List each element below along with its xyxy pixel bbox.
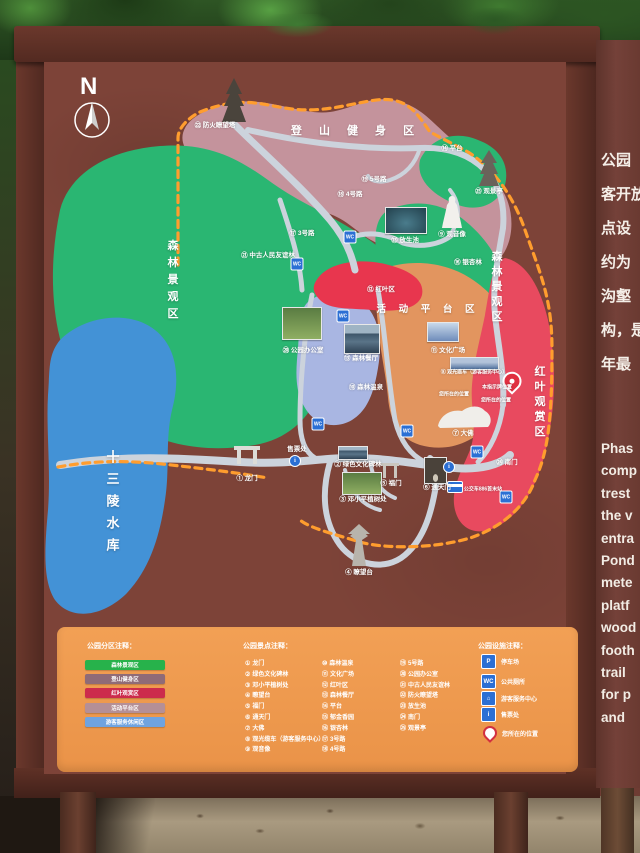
spot-label: 红叶区 — [330, 683, 348, 689]
map-label: ⑦ 大佛 — [452, 427, 473, 437]
spot-label: 银杏林 — [330, 726, 348, 732]
legend-spot-item: ⑯银杏林 — [322, 723, 348, 732]
legend-spots-title: 公园景点注释： — [243, 641, 292, 651]
spot-number: ⑲ — [400, 661, 406, 667]
zone-label: 登 山 健 身 区 — [291, 122, 421, 138]
facility-label: 售票处 — [501, 710, 519, 719]
legend-zone-bar-label: 游客服务休闲区 — [106, 718, 145, 726]
legend-zone-bar-label: 红叶观赏区 — [111, 689, 139, 697]
legend-spot-item: ⑩森林温泉 — [322, 658, 353, 667]
map-facility-icon: i — [289, 455, 301, 467]
map-label: ㉑ 中古人民友谊林 — [241, 249, 295, 259]
map-label: ⑭ 平台 — [441, 142, 462, 152]
legend-zones-title: 公园分区注释： — [87, 641, 136, 651]
legend-spot-item: ㉒防火瞭望塔 — [400, 690, 438, 699]
map-photo-thumb — [282, 307, 322, 340]
legend-spot-item: ⑳公园办公室 — [400, 669, 438, 678]
chinese-text-line: 年最 — [601, 348, 640, 382]
spot-number: ③ — [245, 683, 250, 689]
panel-leg — [601, 788, 634, 853]
zone-label: 森林景观区 — [488, 251, 504, 326]
spot-number: ① — [245, 661, 250, 667]
english-text-line: entra — [601, 528, 637, 550]
legend-panel: 公园分区注释： 森林景观区 登山健身区 红叶观赏区 活动平台区 游客服务休闲区 … — [57, 627, 578, 772]
spot-label: 5号路 — [408, 661, 423, 667]
spot-number: ⑤ — [245, 704, 250, 710]
spot-number: ⑧ — [245, 737, 250, 743]
spot-label: 绿色文化碑林 — [252, 672, 288, 678]
spot-label: 公园办公室 — [408, 672, 438, 678]
spot-number: ㉓ — [400, 704, 406, 710]
spot-number: ⑩ — [322, 661, 327, 667]
legend-zone-bar: 红叶观赏区 — [85, 688, 165, 698]
facility-icon: WC — [481, 674, 496, 689]
legend-spot-item: ⑰3号路 — [322, 734, 345, 743]
legend-spot-item: ④瞭望台 — [245, 690, 270, 699]
english-text-line: Pond — [601, 550, 637, 572]
spot-number: ㉔ — [400, 715, 406, 721]
legend-zone-bar-label: 森林景观区 — [111, 661, 139, 669]
map-label: ⑩ 森林温泉 — [349, 381, 383, 391]
map-label: ㉕ 观景亭 — [475, 185, 503, 195]
spot-label: 中古人民友谊林 — [408, 683, 450, 689]
map-label: ⑥ 通天门 — [423, 481, 451, 491]
legend-spot-item: ⑱4号路 — [322, 744, 345, 753]
map-label: ⑯ 银杏林 — [454, 256, 482, 266]
map-label: ⑳ 公园办公室 — [283, 344, 324, 354]
map-label: ③ 邓小平植树处 — [339, 493, 386, 503]
spot-label: 森林温泉 — [329, 661, 353, 667]
map-label: 您所在的位置 — [481, 397, 511, 404]
legend-spot-item: ㉔南门 — [400, 712, 420, 721]
facility-icon — [480, 723, 500, 743]
map-label: ⑪ 文化广场 — [431, 344, 465, 354]
spot-number: ㉑ — [400, 683, 406, 689]
map-label: ㉔ 南门 — [496, 456, 517, 466]
legend-zone-bar: 登山健身区 — [85, 674, 165, 684]
chinese-text-line: 客开放 — [601, 178, 640, 212]
sign-left-leg — [60, 792, 96, 853]
english-text-line: trail — [601, 662, 637, 684]
map-label: ⑫ 红叶区 — [367, 283, 395, 293]
facility-label: 游客服务中心 — [501, 694, 537, 703]
info-panel: 公园客开放点设约为沟壑构，是年最 Phascomptrestthe ventra… — [596, 40, 640, 788]
map-facility-icon: i — [443, 461, 455, 473]
legend-spot-item: ⑮郁金香园 — [322, 712, 354, 721]
legend-spot-item: ①龙门 — [245, 658, 264, 667]
map-photo-thumb — [427, 322, 459, 342]
map-label: ① 龙门 — [236, 472, 257, 482]
map-label: ⑲ 5号路 — [362, 173, 387, 183]
legend-spot-item: ③邓小平植树处 — [245, 680, 288, 689]
legend-spot-item: ⑭平台 — [322, 701, 342, 710]
map-photo-thumb — [342, 472, 382, 495]
spot-number: ⑯ — [322, 726, 328, 732]
chinese-text-line: 沟壑 — [601, 280, 640, 314]
spot-label: 平台 — [330, 704, 342, 710]
legend-spot-item: ⑤福门 — [245, 701, 264, 710]
legend-spot-item: ②绿色文化碑林 — [245, 669, 288, 678]
fortune-gate-structure — [381, 463, 399, 478]
legend-spot-item: ⑨观音像 — [245, 744, 270, 753]
spot-label: 森林餐厅 — [330, 693, 354, 699]
park-map-sign-photo: N WCWCWCWCWCWCWCii 登 山 健 身 区活 动 平 台 区森林景… — [0, 0, 640, 853]
map-photo-thumb — [344, 324, 380, 354]
legend-spot-item: ㉓放生池 — [400, 701, 426, 710]
english-text-line: for p — [601, 684, 637, 706]
english-text-line: wood — [601, 617, 637, 639]
legend-zone-bar: 游客服务休闲区 — [85, 717, 165, 727]
map-label: ⑬ 森林餐厅 — [344, 352, 378, 362]
map-label: 售票处 — [287, 443, 307, 453]
facility-icon: P — [481, 654, 496, 669]
spot-label: 通天门 — [252, 715, 270, 721]
spot-label: 瞭望台 — [252, 693, 270, 699]
map-label: ⑰ 3号路 — [290, 227, 315, 237]
legend-facility-item: 您所在的位置 — [481, 726, 538, 740]
facility-label: 公共厕所 — [501, 677, 525, 686]
legend-facility-item: P 停车场 — [481, 654, 519, 669]
legend-facility-item: ⌂ 游客服务中心 — [481, 691, 537, 706]
english-text-line: and — [601, 707, 637, 729]
english-text-line: trest — [601, 483, 637, 505]
zone-label: 十三陵水库 — [103, 450, 122, 560]
leaf-overhang — [250, 14, 345, 48]
spot-label: 龙门 — [252, 661, 264, 667]
facility-icon: i — [481, 707, 496, 722]
legend-spot-item: ㉕观景亭 — [400, 723, 426, 732]
map-facility-icon: WC — [344, 231, 357, 244]
spot-label: 观音像 — [252, 747, 270, 753]
sign-left-post — [16, 30, 46, 794]
map-facility-icon: WC — [337, 310, 350, 323]
map-label: ④ 瞭望台 — [345, 566, 373, 576]
spot-label: 文化广场 — [330, 672, 354, 678]
spot-label: 放生池 — [408, 704, 426, 710]
spot-number: ⑮ — [322, 715, 328, 721]
spot-number: ⑫ — [322, 683, 328, 689]
spot-number: ㉒ — [400, 693, 406, 699]
legend-facility-item: WC 公共厕所 — [481, 674, 525, 689]
spot-label: 南门 — [408, 715, 420, 721]
zone-label: 森林景观区 — [164, 240, 180, 325]
spot-label: 郁金香园 — [330, 715, 354, 721]
english-text-line: Phas — [601, 438, 637, 460]
legend-zone-bar-label: 活动平台区 — [111, 704, 139, 712]
legend-spot-item: ⑦大佛 — [245, 723, 264, 732]
compass-n-label: N — [80, 73, 97, 100]
map-label: ⑱ 4号路 — [338, 188, 363, 198]
spot-label: 邓小平植树处 — [252, 683, 288, 689]
legend-spot-item: ⑧观光缆车（游客服务中心） — [245, 734, 324, 743]
legend-spot-item: ⑬森林餐厅 — [322, 690, 354, 699]
map-label: ⑨ 观音像 — [438, 228, 466, 238]
map-label: 本指示牌位置 — [482, 384, 512, 391]
facility-icon: ⌂ — [481, 691, 496, 706]
map-facility-icon: WC — [312, 418, 325, 431]
english-text-line: footh — [601, 640, 637, 662]
legend-spot-item: ⑫红叶区 — [322, 680, 348, 689]
chinese-text-line: 公园 — [601, 144, 640, 178]
map-label: ⑧ 观光缆车（游客服务中心） — [441, 369, 507, 376]
legend-zone-bar-label: 登山健身区 — [111, 675, 139, 683]
spot-label: 福门 — [252, 704, 264, 710]
spot-number: ④ — [245, 693, 250, 699]
chinese-text-line: 点设 — [601, 212, 640, 246]
map-facility-icon: WC — [401, 425, 414, 438]
english-text-line: mete — [601, 572, 637, 594]
legend-spot-item: ⑥通天门 — [245, 712, 270, 721]
spot-label: 3号路 — [330, 737, 345, 743]
sign-right-leg — [494, 792, 528, 853]
info-panel-chinese-text: 公园客开放点设约为沟壑构，是年最 — [601, 144, 640, 382]
fire-watchtower-structure — [222, 78, 246, 122]
facility-label: 停车场 — [501, 657, 519, 666]
leaf-overhang — [452, 8, 537, 44]
spot-label: 4号路 — [330, 747, 345, 753]
map-photo-thumb — [385, 207, 427, 234]
spot-label: 防火瞭望塔 — [408, 693, 438, 699]
spot-number: ⑨ — [245, 747, 250, 753]
map-label: ㉒ 防火瞭望塔 — [195, 119, 236, 129]
map-label: ㉓ 放生池 — [391, 234, 419, 244]
spot-number: ⑪ — [322, 672, 328, 678]
english-text-line: platf — [601, 595, 637, 617]
spot-number: ⑭ — [322, 704, 328, 710]
spot-label: 观光缆车（游客服务中心） — [252, 737, 324, 743]
legend-spot-item: ⑲5号路 — [400, 658, 423, 667]
chinese-text-line: 约为 — [601, 246, 640, 280]
legend-spot-item: ㉑中古人民友谊林 — [400, 680, 450, 689]
legend-facilities-title: 公园设施注释： — [478, 641, 527, 651]
spot-label: 观景亭 — [408, 726, 426, 732]
facility-label: 您所在的位置 — [502, 729, 538, 738]
spot-number: ⑳ — [400, 672, 406, 678]
english-text-line: comp — [601, 460, 637, 482]
legend-spot-item: ⑪文化广场 — [322, 669, 354, 678]
map-label: 您所在的位置 — [439, 391, 469, 398]
chinese-text-line: 构，是 — [601, 314, 640, 348]
spot-number: ⑱ — [322, 747, 328, 753]
legend-zone-bar: 活动平台区 — [85, 703, 165, 713]
compass: N — [75, 73, 109, 137]
spot-number: ⑰ — [322, 737, 328, 743]
info-panel-english-text: Phascomptrestthe ventraPondmeteplatfwood… — [601, 438, 637, 729]
spot-label: 大佛 — [252, 726, 264, 732]
legend-facility-item: i 售票处 — [481, 707, 519, 722]
legend-zone-bar: 森林景观区 — [85, 660, 165, 670]
map-facility-icon: WC — [471, 446, 484, 459]
spot-number: ② — [245, 672, 250, 678]
map-facility-icon: WC — [291, 258, 304, 271]
english-text-line: the v — [601, 505, 637, 527]
map-label: ② 绿色文化碑林 — [334, 458, 381, 468]
spot-number: ㉕ — [400, 726, 406, 732]
zone-label: 活 动 平 台 区 — [376, 301, 479, 315]
map-label: ⑤ 福门 — [380, 477, 401, 487]
spot-number: ⑬ — [322, 693, 328, 699]
zone-label: 红叶观赏区 — [531, 366, 547, 441]
spot-number: ⑥ — [245, 715, 250, 721]
spot-number: ⑦ — [245, 726, 250, 732]
map-label: 公交车886首末站 — [464, 486, 502, 493]
